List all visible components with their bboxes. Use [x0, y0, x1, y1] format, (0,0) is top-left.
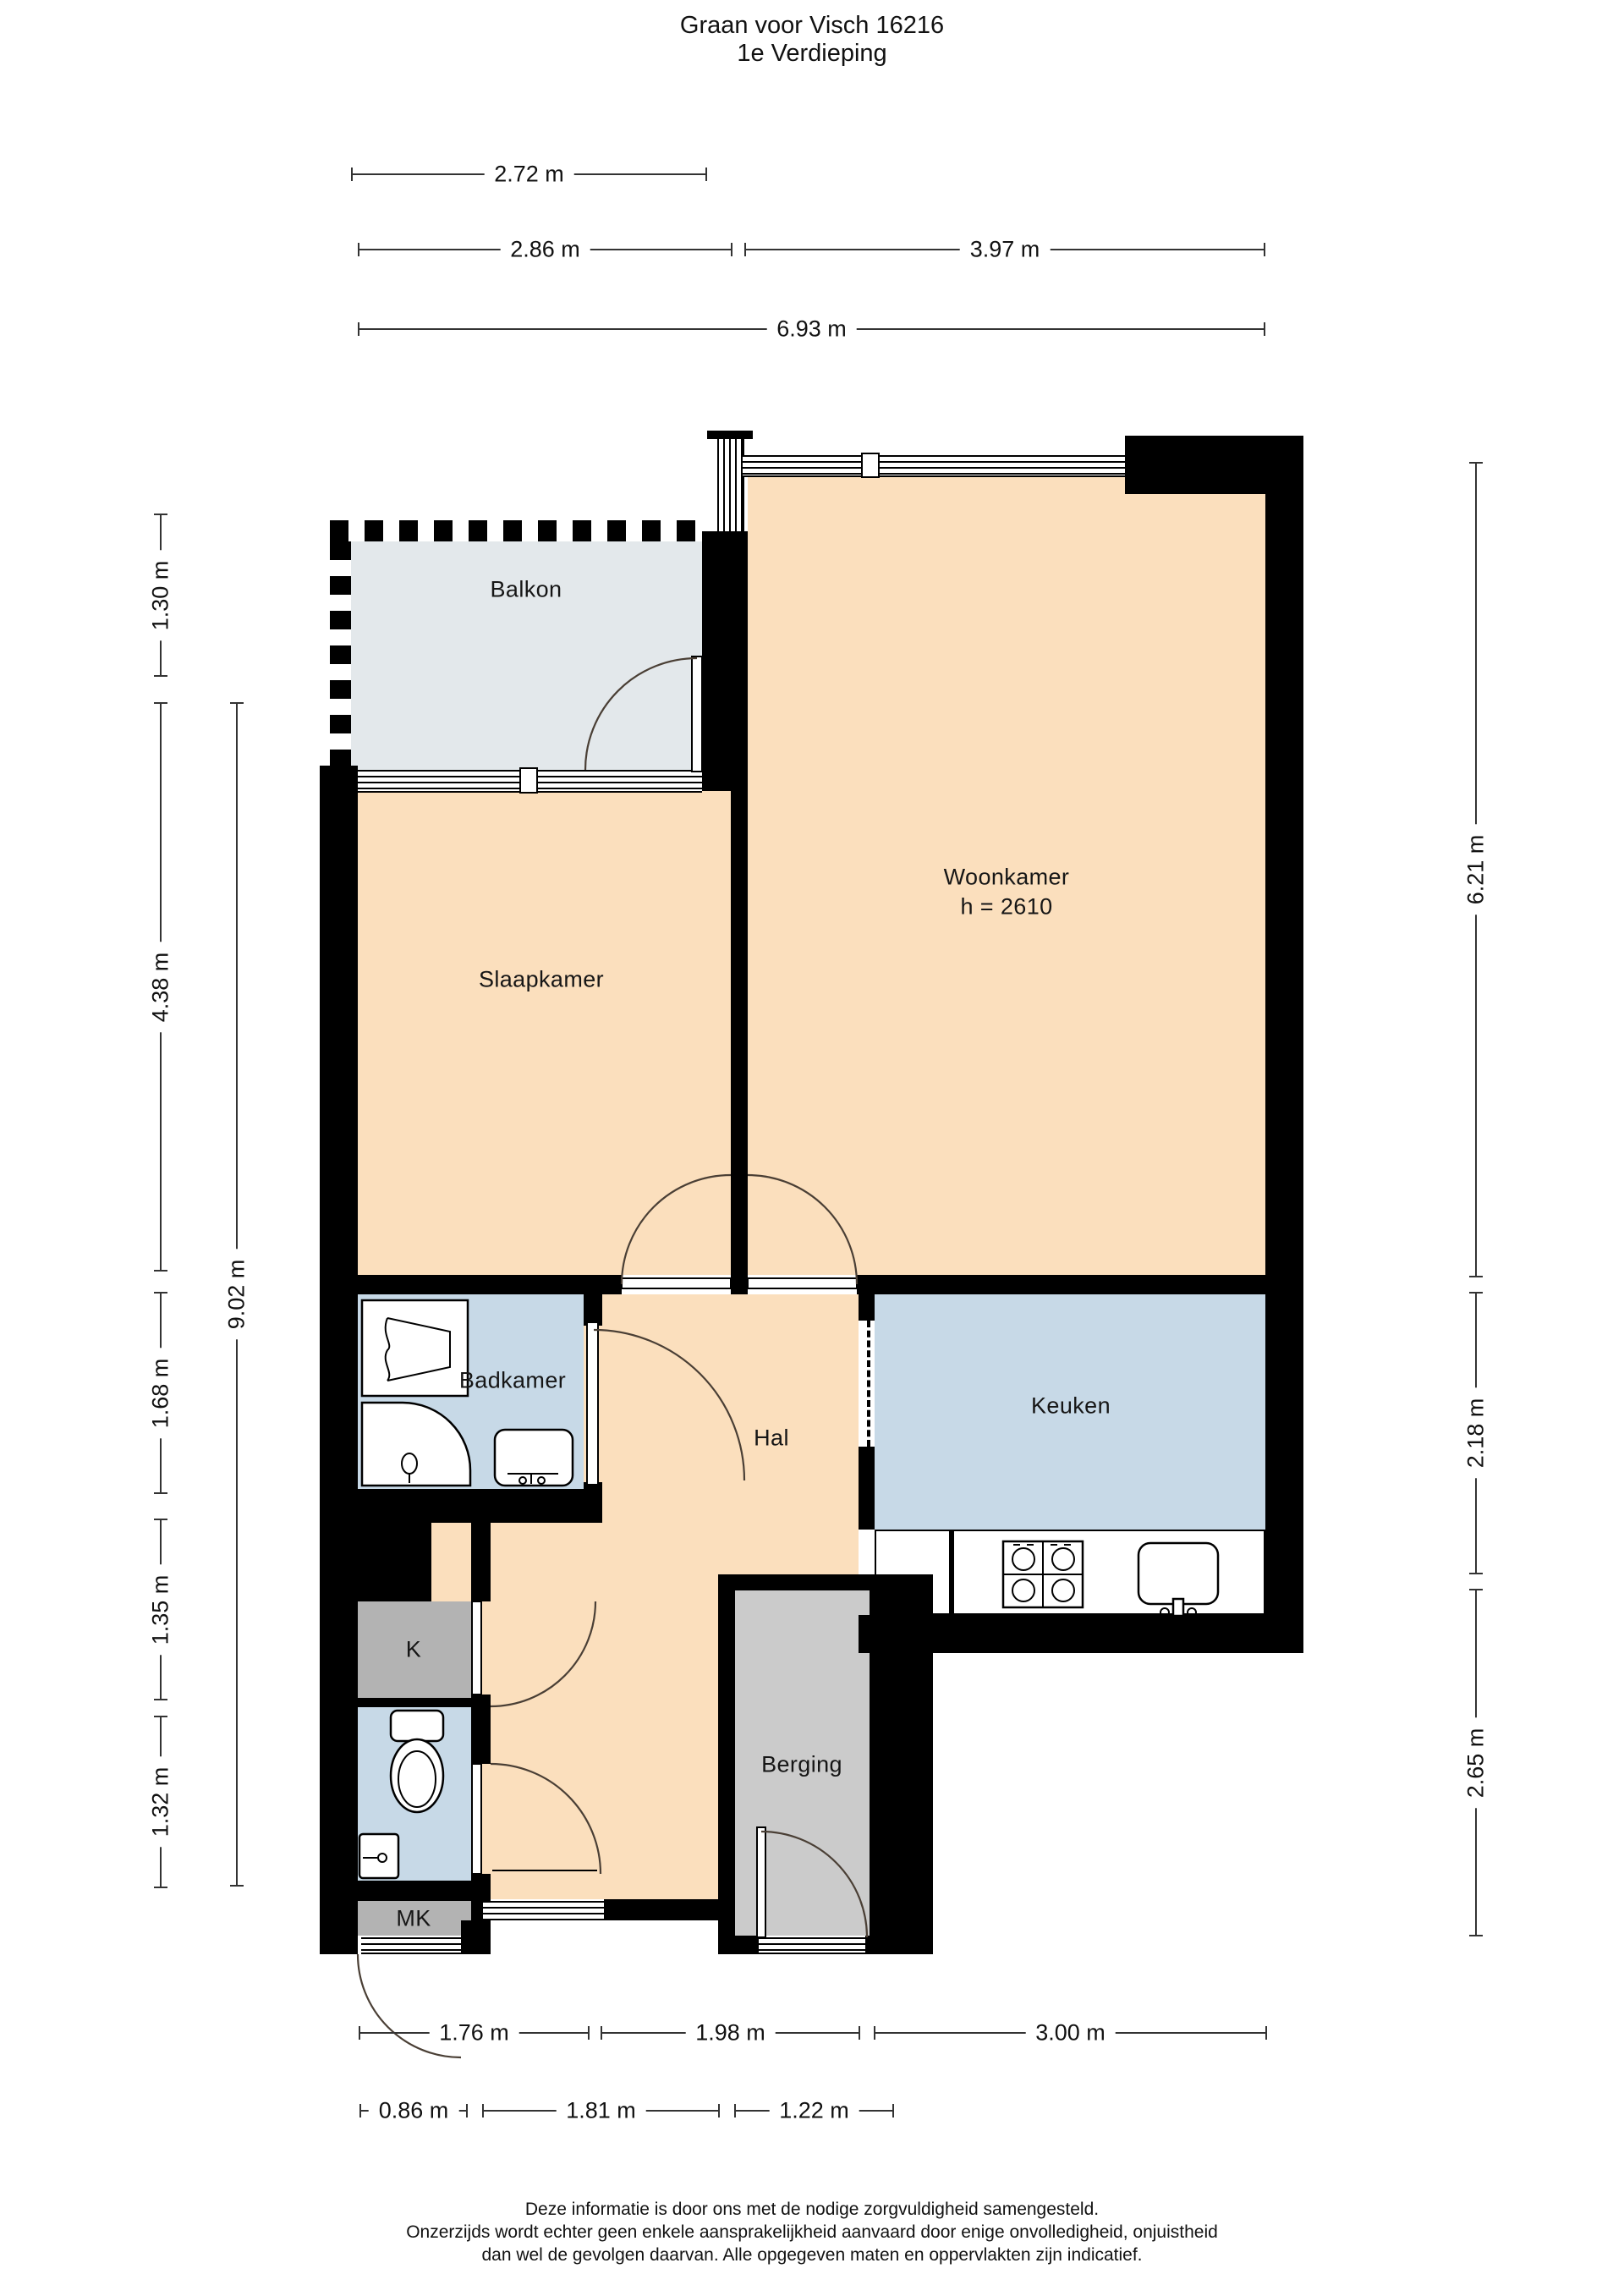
- dimension-right-265: 2.65 m: [1475, 1589, 1477, 1936]
- room-label-woonkamer: Woonkamer: [944, 865, 1070, 891]
- dimension-bottom-198: 1.98 m: [601, 2032, 860, 2034]
- room-label-badkamer: Badkamer: [459, 1368, 566, 1394]
- balcony-door-leaf: [692, 656, 702, 772]
- room-label-hal: Hal: [754, 1425, 789, 1452]
- door-arc-balkon: [585, 658, 697, 770]
- room-label-slaapkamer: Slaapkamer: [479, 967, 604, 993]
- door-arc-badkamer: [594, 1330, 744, 1480]
- room-label-keuken: Keuken: [1031, 1393, 1111, 1420]
- dimension-left-132: 1.32 m: [160, 1716, 162, 1888]
- dimension-bottom-181: 1.81 m: [482, 2110, 720, 2112]
- kitchen-faucet-icon: [1173, 1599, 1183, 1616]
- door-arc-woonkamer: [748, 1175, 857, 1284]
- room-label-balkon: Balkon: [491, 577, 562, 603]
- dimension-left-130: 1.30 m: [160, 514, 162, 677]
- room-label-woonkamer-height: h = 2610: [960, 894, 1052, 920]
- room-label-kast: K: [406, 1637, 421, 1663]
- door-arc-toilet: [491, 1764, 601, 1874]
- room-label-meterkast: MK: [396, 1906, 431, 1932]
- plan-graphics: [0, 0, 1624, 2296]
- slaapkamer-door-leaf: [622, 1278, 731, 1288]
- dimension-top-693: 6.93 m: [358, 328, 1265, 330]
- dimension-top-272: 2.72 m: [351, 173, 707, 175]
- berging-door-leaf: [757, 1827, 765, 1937]
- room-label-berging: Berging: [761, 1752, 842, 1778]
- footer-disclaimer-line3: dan wel de gevolgen daarvan. Alle opgege…: [0, 2245, 1624, 2266]
- dimension-top-397: 3.97 m: [744, 249, 1265, 250]
- footer-disclaimer-line2: Onzerzijds wordt echter geen enkele aans…: [0, 2222, 1624, 2243]
- kitchen-sink-icon: [1138, 1543, 1218, 1604]
- dimension-right-621: 6.21 m: [1475, 462, 1477, 1277]
- badkamer-door-leaf: [587, 1322, 598, 1485]
- dimension-left-902: 9.02 m: [236, 702, 238, 1887]
- kitchen-faucet-icon: [1160, 1608, 1169, 1617]
- kitchen-faucet-icon: [1188, 1608, 1196, 1617]
- dimension-top-286: 2.86 m: [358, 249, 732, 250]
- dimension-bottom-122: 1.22 m: [734, 2110, 894, 2112]
- dimension-left-135: 1.35 m: [160, 1519, 162, 1700]
- door-arc-slaapkamer: [622, 1175, 731, 1284]
- dimension-bottom-176: 1.76 m: [359, 2032, 590, 2034]
- kast-door-leaf: [472, 1601, 481, 1695]
- dimension-left-438: 4.38 m: [160, 702, 162, 1272]
- toilet-tank-icon: [391, 1711, 443, 1741]
- door-arc-berging: [761, 1832, 867, 1937]
- footer-disclaimer-line1: Deze informatie is door ons met de nodig…: [0, 2200, 1624, 2220]
- sink-icon: [495, 1430, 573, 1486]
- woonkamer-door-leaf: [748, 1278, 857, 1288]
- washbasin-cabinet-icon: [362, 1300, 468, 1396]
- shower-icon: [362, 1403, 470, 1486]
- dimension-left-168: 1.68 m: [160, 1292, 162, 1494]
- dimension-bottom-300: 3.00 m: [874, 2032, 1267, 2034]
- toilet-door-leaf: [472, 1764, 481, 1874]
- dimension-bottom-086: 0.86 m: [359, 2110, 468, 2112]
- dimension-right-218: 2.18 m: [1475, 1292, 1477, 1574]
- floorplan-page: Graan voor Visch 16216 1e Verdieping: [0, 0, 1624, 2296]
- door-arc-kast: [491, 1601, 595, 1706]
